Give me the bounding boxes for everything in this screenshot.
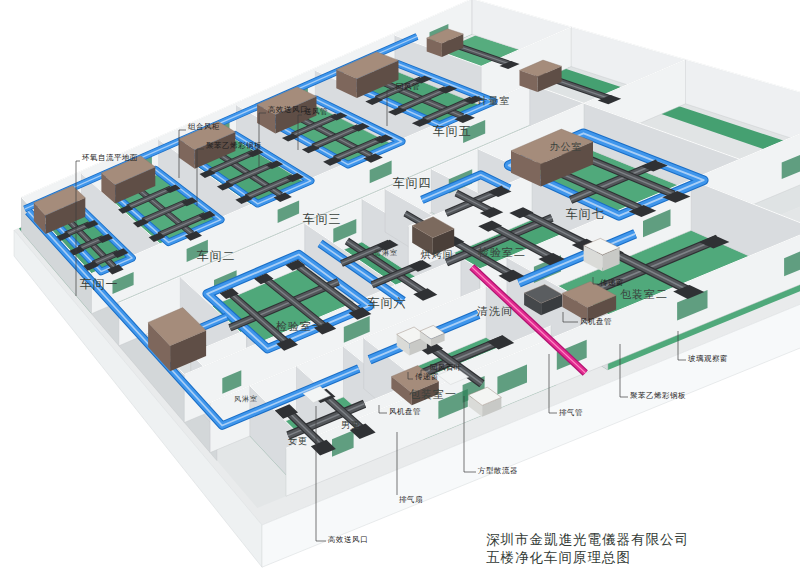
title-block: 深圳市金凱進光電儀器有限公司 五楼净化车间原理总图 bbox=[486, 531, 689, 566]
drawing-title: 五楼净化车间原理总图 bbox=[486, 549, 689, 567]
cleanroom-isometric-diagram: 车间一车间二车间三车间四车间五车间六车间七计量室办公室检验室一检验室二烘烤间清洗… bbox=[0, 0, 800, 587]
isometric-artwork bbox=[0, 0, 800, 587]
company-name: 深圳市金凱進光電儀器有限公司 bbox=[486, 531, 689, 549]
